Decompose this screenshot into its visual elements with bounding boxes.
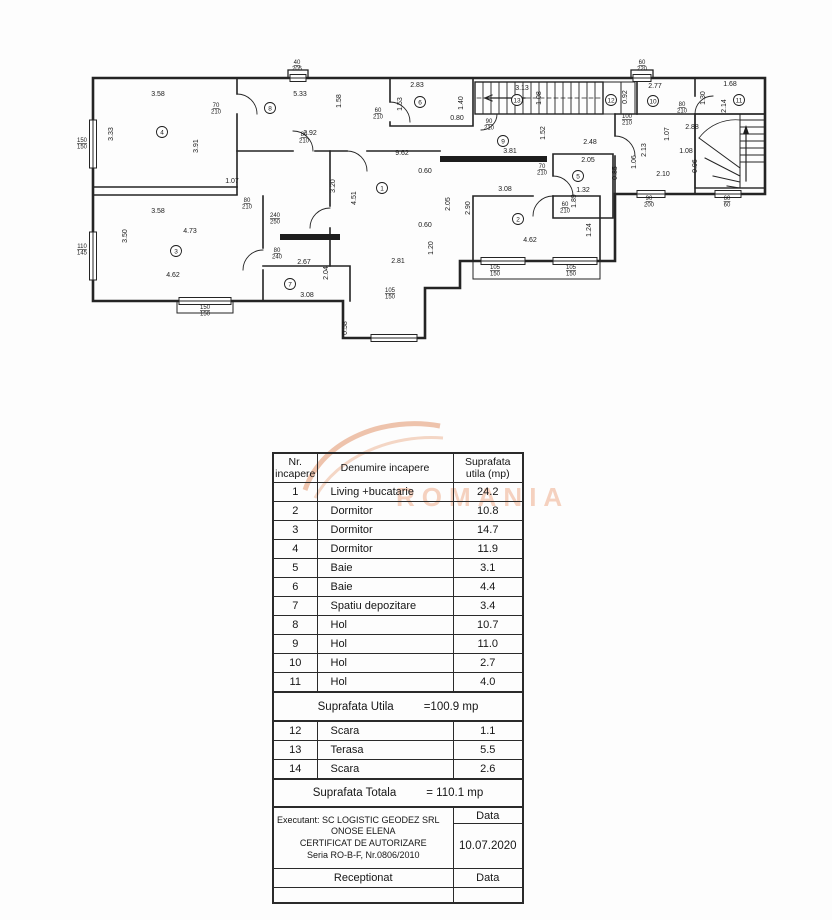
table-header-row: Nr.incapere Denumire incapere Suprafatau…: [273, 453, 523, 483]
room-area-cell: 4.4: [453, 578, 523, 597]
executant-line: Executant: SC LOGISTIC GEODEZ SRL: [274, 815, 453, 827]
room-area-cell: 2.7: [453, 654, 523, 673]
dim-label: 3.33: [108, 127, 115, 141]
size-label: 60220: [637, 60, 648, 72]
dim-label: 1.89: [571, 194, 578, 208]
header-denumire: Denumire incapere: [317, 453, 453, 483]
dim-label: 2.04: [323, 266, 330, 280]
room-name-cell: Scara: [317, 721, 453, 741]
table-row: 11Hol4.0: [273, 673, 523, 693]
total-value: = 110.1 mp: [426, 787, 483, 799]
table-row: 10Hol2.7: [273, 654, 523, 673]
table-row: 13Terasa5.5: [273, 741, 523, 760]
header-suprafata: Suprafatautila (mp): [453, 453, 523, 483]
room-number-cell: 14: [273, 760, 317, 780]
size-label: 40205: [292, 60, 303, 72]
table-row: 7Spatiu depozitare3.4: [273, 597, 523, 616]
room-number: 12: [607, 97, 615, 104]
table-row: 9Hol11.0: [273, 635, 523, 654]
dim-label: 2.48: [583, 139, 597, 146]
dim-label: 1.24: [586, 223, 593, 237]
room-number-cell: 9: [273, 635, 317, 654]
dim-label: 2.05: [445, 197, 452, 211]
size-label: 70210: [537, 164, 548, 176]
dim-label: 1.08: [536, 91, 543, 105]
room-name-cell: Spatiu depozitare: [317, 597, 453, 616]
room-area-cell: 10.7: [453, 616, 523, 635]
room-number-cell: 4: [273, 540, 317, 559]
room-number: 4: [160, 129, 164, 136]
dim-label: 0.92: [622, 90, 629, 104]
dim-label: 4.62: [523, 237, 537, 244]
room-number: 9: [501, 138, 505, 145]
size-label: 100210: [622, 114, 633, 126]
dim-label: 2.05: [581, 157, 595, 164]
dim-label: 4.62: [166, 272, 180, 279]
room-name-cell: Hol: [317, 616, 453, 635]
dim-label: 3.58: [151, 91, 165, 98]
table-row: 4Dormitor11.9: [273, 540, 523, 559]
room-number: 5: [576, 173, 580, 180]
dim-label: 0.60: [418, 222, 432, 229]
room-number: 11: [736, 97, 743, 104]
size-label: 150150: [77, 138, 88, 150]
page: 3.585.332.830.803.132.771.689.623.812.48…: [0, 0, 832, 920]
room-name-cell: Dormitor: [317, 521, 453, 540]
size-label: 240250: [270, 213, 281, 225]
room-area-cell: 2.6: [453, 760, 523, 780]
room-area-cell: 11.0: [453, 635, 523, 654]
room-name-cell: Living +bucatarie: [317, 483, 453, 502]
dim-label: 1.06: [631, 155, 638, 169]
stairs-spiral: [695, 114, 765, 188]
dim-label: 3.08: [498, 186, 512, 193]
room-number-cell: 5: [273, 559, 317, 578]
room-name-cell: Dormitor: [317, 502, 453, 521]
dim-label: 2.13: [641, 143, 648, 157]
dim-label: 3.20: [330, 179, 337, 193]
dim-label: 1.52: [540, 126, 547, 140]
dim-label: 1.30: [700, 91, 707, 105]
dim-label: 1.07: [225, 178, 239, 185]
room-area-cell: 10.8: [453, 502, 523, 521]
receptionat-data-cell: Data: [453, 869, 523, 888]
room-area-cell: 1.1: [453, 721, 523, 741]
dim-label: 1.58: [336, 94, 343, 108]
dim-label: 2.77: [648, 83, 662, 90]
dim-label: 4.73: [183, 228, 197, 235]
size-label: 60210: [560, 202, 571, 214]
empty-row: [273, 888, 523, 904]
room-number: 3: [174, 248, 178, 255]
exterior-steps: [177, 261, 600, 313]
inner-walls: [93, 78, 765, 301]
executant-line: ONOSE ELENA: [274, 826, 453, 838]
dim-label: 9.62: [395, 150, 409, 157]
total-label: Suprafata Totala: [313, 787, 397, 799]
size-label: 105150: [385, 288, 396, 300]
table-row: 2Dormitor10.8: [273, 502, 523, 521]
size-label: 80210: [677, 102, 688, 114]
dim-label: 2.83: [410, 82, 424, 89]
dim-label: 1.68: [723, 81, 737, 88]
room-name-cell: Hol: [317, 654, 453, 673]
receptionat-row: Receptionat Data: [273, 869, 523, 888]
table-row: 6Baie4.4: [273, 578, 523, 597]
room-area-cell: 4.0: [453, 673, 523, 693]
subtotal-row: Suprafata Utila =100.9 mp: [273, 692, 523, 721]
room-number-cell: 11: [273, 673, 317, 693]
door-arcs: [237, 94, 713, 270]
dim-label: 3.08: [300, 292, 314, 299]
dim-label: 2.81: [391, 258, 405, 265]
table-row: 3Dormitor14.7: [273, 521, 523, 540]
room-number: 8: [268, 105, 272, 112]
room-name-cell: Dormitor: [317, 540, 453, 559]
dim-label: 0.96: [692, 159, 699, 173]
dim-label: 4.51: [351, 191, 358, 205]
room-number-cell: 6: [273, 578, 317, 597]
dim-label: 1.08: [679, 148, 693, 155]
executant-line: Seria RO-B-F, Nr.0806/2010: [274, 850, 453, 862]
room-area-cell: 14.7: [453, 521, 523, 540]
room-number-cell: 8: [273, 616, 317, 635]
size-label: 110145: [77, 244, 88, 256]
room-number: 7: [288, 281, 292, 288]
room-number-cell: 2: [273, 502, 317, 521]
size-label: 150150: [200, 305, 211, 317]
size-label: 70210: [211, 103, 222, 115]
floor-plan: 3.585.332.830.803.132.771.689.623.812.48…: [73, 56, 768, 348]
room-number-cell: 1: [273, 483, 317, 502]
dim-label: 3.91: [193, 139, 200, 153]
dim-label: 2.90: [465, 201, 472, 215]
dim-label: 0.60: [418, 168, 432, 175]
size-label: 105150: [490, 265, 501, 277]
room-name-cell: Terasa: [317, 741, 453, 760]
room-number-cell: 3: [273, 521, 317, 540]
dim-label: 3.13: [515, 85, 529, 92]
room-name-cell: Hol: [317, 673, 453, 693]
room-number: 2: [516, 216, 520, 223]
room-table-body: Nr.incapere Denumire incapere Suprafatau…: [273, 453, 523, 903]
wall-fills: [280, 156, 547, 240]
executant-line: CERTIFICAT DE AUTORIZARE: [274, 838, 453, 850]
dim-label: 0.58: [342, 321, 349, 335]
size-label: 60210: [373, 108, 384, 120]
room-number: 6: [418, 99, 422, 106]
room-name-cell: Baie: [317, 578, 453, 597]
dim-label: 3.50: [122, 229, 129, 243]
subtotal-value: =100.9 mp: [424, 701, 479, 713]
dim-label: 1.32: [576, 187, 590, 194]
header-nr: Nr.incapere: [273, 453, 317, 483]
size-label: 6060: [724, 196, 731, 208]
room-number-cell: 13: [273, 741, 317, 760]
table-row: 5Baie3.1: [273, 559, 523, 578]
room-area-cell: 24.2: [453, 483, 523, 502]
subtotal-label: Suprafata Utila: [318, 701, 394, 713]
table-row: 12Scara1.1: [273, 721, 523, 741]
room-area-cell: 11.9: [453, 540, 523, 559]
room-number-cell: 12: [273, 721, 317, 741]
size-label: 80240: [272, 248, 283, 260]
room-area-cell: 3.4: [453, 597, 523, 616]
room-number: 1: [380, 185, 384, 192]
room-area-cell: 5.5: [453, 741, 523, 760]
dim-label: 2.88: [685, 124, 699, 131]
room-number: 13: [513, 97, 521, 104]
dim-label: 0.80: [450, 115, 464, 122]
size-label: 90210: [484, 119, 495, 131]
executant-cell: Executant: SC LOGISTIC GEODEZ SRLONOSE E…: [273, 807, 453, 869]
date-cell: 10.07.2020: [453, 824, 523, 869]
room-number-cell: 7: [273, 597, 317, 616]
size-label: 80210: [242, 198, 253, 210]
dim-label: 3.58: [151, 208, 165, 215]
dim-label: 0.85: [612, 166, 619, 180]
table-row: 14Scara2.6: [273, 760, 523, 780]
room-name-cell: Baie: [317, 559, 453, 578]
dim-label: 1.53: [397, 97, 404, 111]
dim-label: 3.81: [503, 148, 517, 155]
table-row: 1Living +bucatarie24.2: [273, 483, 523, 502]
data-label-cell: Data: [453, 807, 523, 824]
room-name-cell: Scara: [317, 760, 453, 780]
dim-label: 1.40: [458, 96, 465, 110]
room-name-cell: Hol: [317, 635, 453, 654]
dim-label: 2.10: [656, 171, 670, 178]
room-table: Nr.incapere Denumire incapere Suprafatau…: [272, 452, 524, 904]
dim-label: 2.67: [297, 259, 311, 266]
room-number-cell: 10: [273, 654, 317, 673]
dim-label: 1.07: [664, 127, 671, 141]
receptionat-cell: Receptionat: [273, 869, 453, 888]
total-row: Suprafata Totala = 110.1 mp: [273, 779, 523, 807]
executant-row: Executant: SC LOGISTIC GEODEZ SRLONOSE E…: [273, 807, 523, 824]
dim-label: 1.20: [428, 241, 435, 255]
table-row: 8Hol10.7: [273, 616, 523, 635]
size-label: 105150: [566, 265, 577, 277]
room-area-cell: 3.1: [453, 559, 523, 578]
dim-label: 2.14: [721, 99, 728, 113]
room-number: 10: [649, 98, 657, 105]
dim-label: 5.33: [293, 91, 307, 98]
